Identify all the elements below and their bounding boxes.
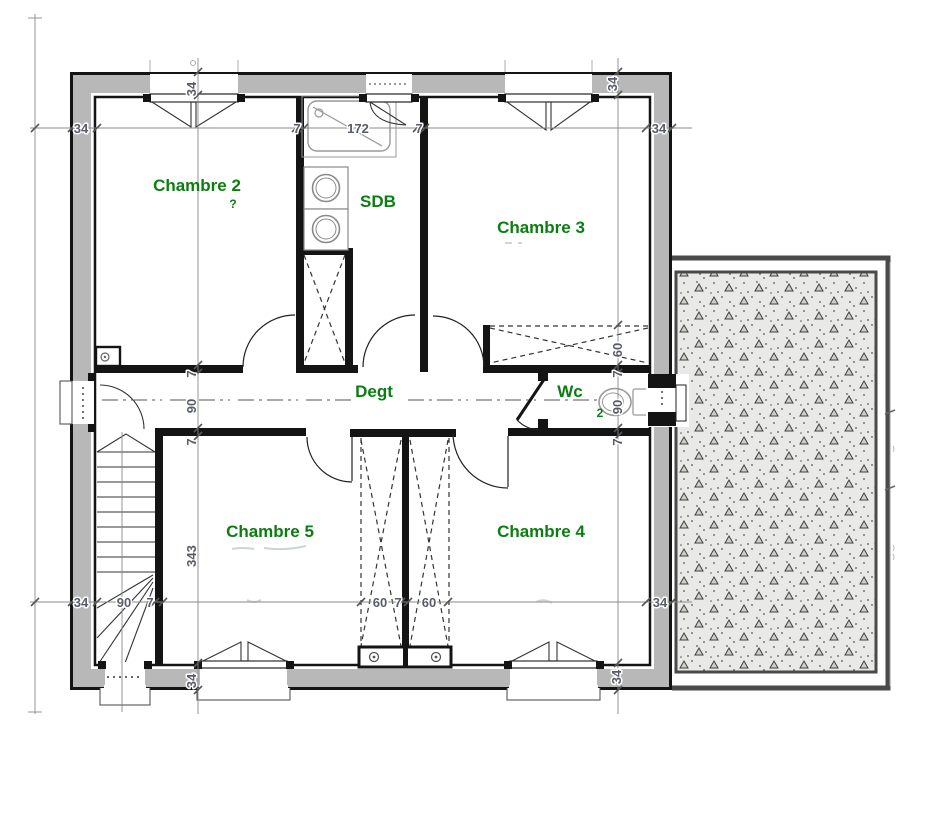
window-sdb	[359, 74, 419, 125]
room-label-sdb: SDB	[360, 192, 396, 211]
staircase	[97, 434, 155, 663]
window-chambre4	[504, 642, 604, 700]
wall-corridor-bottom-left	[155, 428, 306, 436]
room-label-chambre4: Chambre 4	[497, 522, 585, 541]
dim-left-7b: 7	[184, 438, 199, 445]
dim-win-chambre2: 34	[184, 81, 199, 96]
wall-stair-chambre5	[155, 428, 163, 665]
room-label-wc: Wc	[557, 382, 583, 401]
wall-sdb-chambre3	[420, 97, 428, 372]
dim-right-90: 90	[610, 400, 625, 414]
wall-chambre2-sdb	[296, 97, 304, 368]
washbasin-unit	[304, 167, 348, 250]
labels: Chambre 2 ? SDB Chambre 3 Degt Wc 2 Cham…	[153, 176, 604, 541]
radiator	[96, 347, 120, 366]
dim-bottom-wall-right: 34	[653, 595, 668, 610]
room-label-chambre5: Chambre 5	[226, 522, 314, 541]
dim-bottom-60b: 60	[422, 595, 436, 610]
terrace-hatch	[672, 258, 895, 688]
door-arc-chambre3	[433, 316, 484, 367]
room-label-wc-remnant: 2	[597, 406, 604, 420]
dim-top-172: 172	[347, 121, 369, 136]
window-chambre3	[498, 60, 599, 130]
erased-text-smudge	[893, 446, 894, 560]
window-stairwell	[98, 661, 152, 705]
doors	[243, 315, 545, 488]
dim-win-chambre4: 34	[609, 669, 624, 684]
dim-top-7b: 7	[415, 121, 422, 136]
closet-base-units	[359, 647, 451, 667]
wall-closet-top	[350, 429, 456, 437]
floor-plan-drawing: Chambre 2 ? SDB Chambre 3 Degt Wc 2 Cham…	[0, 0, 938, 826]
wall-corridor-bottom-right	[508, 428, 650, 436]
floor-plan: Chambre 2 ? SDB Chambre 3 Degt Wc 2 Cham…	[0, 0, 938, 826]
wall-corridor-top-mid	[296, 365, 358, 373]
dim-top-wall-left: 34	[74, 121, 89, 136]
wall-closet-center	[402, 437, 409, 649]
dim-win-chambre3: 34	[605, 76, 620, 91]
dim-right-7a: 7	[610, 370, 625, 377]
room-label-chambre2: Chambre 2	[153, 176, 241, 195]
dim-top-wall-right: 34	[652, 121, 667, 136]
erased-text-smudges	[232, 243, 552, 603]
dim-bottom-wall-left: 34	[74, 595, 89, 610]
dim-right-7b: 7	[610, 438, 625, 445]
door-arc-chambre5	[307, 437, 352, 482]
door-leaf-wc	[517, 378, 545, 420]
dim-right-60: 60	[610, 343, 625, 357]
dim-bottom-7a: 7	[146, 595, 153, 610]
closets	[304, 255, 649, 646]
dim-bottom-60a: 60	[373, 595, 387, 610]
room-label-chambre2-remnant: ?	[229, 197, 236, 211]
window-wc	[646, 374, 689, 427]
dim-left-7a: 7	[184, 370, 199, 377]
wall-placard-right	[345, 250, 353, 368]
room-label-chambre3: Chambre 3	[497, 218, 585, 237]
window-corridor-left	[58, 373, 144, 432]
door-arc-chambre4	[453, 433, 508, 488]
dim-bottom-90: 90	[117, 595, 131, 610]
room-label-degt: Degt	[355, 382, 393, 401]
wc-door-hinge-bottom	[538, 419, 548, 432]
dim-bottom-7b: 7	[394, 595, 401, 610]
dim-top-7a: 7	[293, 121, 300, 136]
terrace-slab	[676, 272, 876, 672]
dim-left-343: 343	[184, 545, 199, 567]
window-chambre5	[194, 642, 294, 700]
door-arc-sdb	[363, 315, 415, 367]
door-arc-chambre2	[243, 315, 295, 367]
dim-win-chambre5: 34	[184, 673, 199, 688]
dim-left-90: 90	[184, 399, 199, 413]
